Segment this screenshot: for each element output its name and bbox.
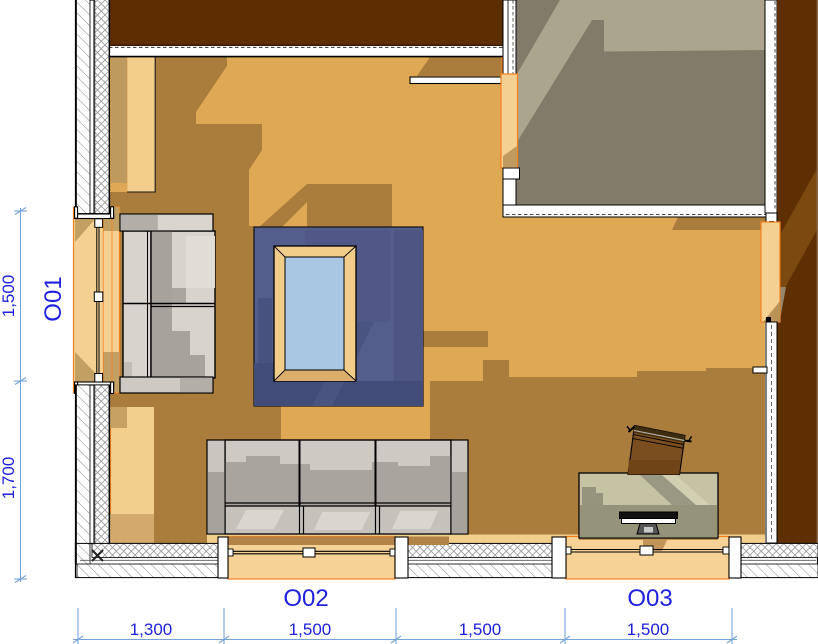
svg-text:O01: O01 xyxy=(40,276,67,321)
svg-text:1,700: 1,700 xyxy=(0,457,18,500)
svg-text:1,300: 1,300 xyxy=(130,620,173,639)
svg-text:O03: O03 xyxy=(627,585,672,612)
svg-text:1,500: 1,500 xyxy=(0,275,18,318)
svg-text:1,500: 1,500 xyxy=(459,620,502,639)
svg-text:O02: O02 xyxy=(283,585,328,612)
svg-text:1,500: 1,500 xyxy=(627,620,670,639)
svg-text:1,500: 1,500 xyxy=(289,620,332,639)
